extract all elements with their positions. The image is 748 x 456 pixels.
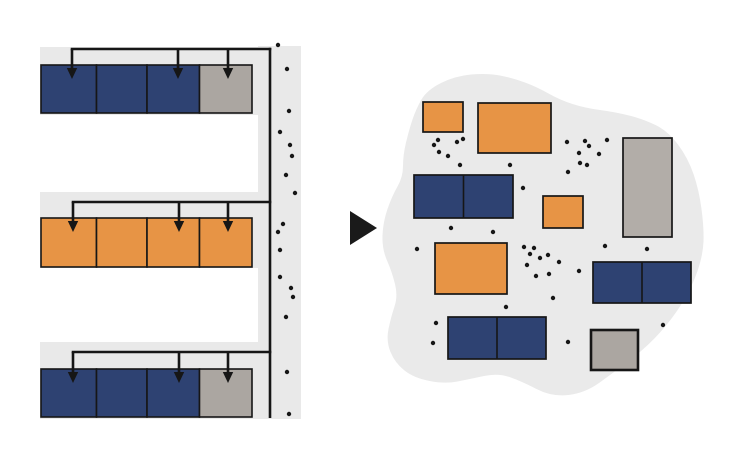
memory-row-2	[40, 192, 271, 268]
heap-object-rect	[623, 138, 672, 237]
spine-scatter-dot	[289, 286, 293, 290]
spine-scatter-dot	[288, 143, 292, 147]
heap-scatter-dot	[528, 252, 532, 256]
heap-scatter-dot	[566, 170, 570, 174]
heap-scatter-dot	[566, 340, 570, 344]
spine-scatter-dot	[276, 230, 280, 234]
heap-scatter-dot	[508, 163, 512, 167]
heap-scatter-dot	[565, 140, 569, 144]
array-cell-orange	[41, 218, 97, 267]
heap-object-rect	[591, 330, 638, 370]
heap-object-blue	[593, 262, 691, 303]
heap-scatter-dot	[577, 269, 581, 273]
heap-object-orange	[423, 102, 463, 132]
memory-row-3	[40, 342, 271, 419]
heap-scatter-dot	[577, 151, 581, 155]
heap-scatter-dot	[522, 245, 526, 249]
heap-object-blue	[448, 317, 546, 359]
heap-scatter-dot	[547, 272, 551, 276]
heap-scatter-dot	[597, 152, 601, 156]
spine-scatter-dot	[284, 173, 288, 177]
heap-scatter-dot	[603, 244, 607, 248]
heap-scatter-dot	[546, 253, 550, 257]
array-cell-blue	[97, 369, 148, 417]
heap-scatter-dot	[583, 139, 587, 143]
heap-object-gray	[591, 330, 638, 370]
diagram-canvas	[0, 0, 748, 456]
heap-object-rect	[423, 102, 463, 132]
heap-object-orange	[435, 243, 507, 294]
array-cell-blue	[41, 65, 97, 113]
heap-scatter-dot	[432, 143, 436, 147]
array-cell-orange	[147, 218, 200, 267]
spine-scatter-dot	[293, 191, 297, 195]
spine-scatter-dot	[278, 130, 282, 134]
array-cell-blue	[41, 369, 97, 417]
heap-scatter-dot	[645, 247, 649, 251]
heap-scatter-dot	[521, 186, 525, 190]
memory-row-1	[40, 47, 271, 115]
heap-scatter-dot	[415, 247, 419, 251]
heap-object-blue	[414, 175, 513, 218]
heap-scatter-dot	[578, 161, 582, 165]
heap-object-orange	[543, 196, 583, 228]
spine-scatter-dot	[287, 109, 291, 113]
right-panel-fragmented-memory	[382, 74, 703, 395]
heap-scatter-dot	[661, 323, 665, 327]
heap-scatter-dot	[525, 263, 529, 267]
heap-scatter-dot	[436, 138, 440, 142]
heap-scatter-dot	[437, 150, 441, 154]
spine-scatter-dot	[278, 275, 282, 279]
spine-scatter-dot	[290, 154, 294, 158]
heap-scatter-dot	[538, 256, 542, 260]
heap-scatter-dot	[504, 305, 508, 309]
spine-scatter-dot	[287, 412, 291, 416]
heap-scatter-dot	[449, 226, 453, 230]
heap-scatter-dot	[491, 230, 495, 234]
spine-scatter-dot	[276, 43, 280, 47]
array-cell-blue	[147, 65, 200, 113]
heap-scatter-dot	[605, 138, 609, 142]
spine-scatter-dot	[285, 370, 289, 374]
spine-scatter-dot	[291, 295, 295, 299]
heap-object-rect	[478, 103, 551, 153]
heap-scatter-dot	[434, 321, 438, 325]
heap-object-rect	[435, 243, 507, 294]
heap-object-gray_light	[623, 138, 672, 237]
heap-scatter-dot	[551, 296, 555, 300]
memory-fragmentation-diagram	[0, 0, 748, 456]
spine-scatter-dot	[278, 248, 282, 252]
array-cell-blue	[147, 369, 200, 417]
spine-scatter-dot	[285, 67, 289, 71]
spine-scatter-dot	[281, 222, 285, 226]
heap-scatter-dot	[587, 144, 591, 148]
left-panel-structured-memory	[40, 43, 301, 419]
array-cell-orange	[97, 218, 148, 267]
heap-scatter-dot	[534, 274, 538, 278]
heap-object-rect	[543, 196, 583, 228]
spine-scatter-dot	[284, 315, 288, 319]
transform-arrow-icon	[350, 211, 377, 245]
heap-scatter-dot	[458, 163, 462, 167]
heap-object-orange	[478, 103, 551, 153]
heap-scatter-dot	[557, 260, 561, 264]
heap-scatter-dot	[585, 163, 589, 167]
heap-scatter-dot	[431, 341, 435, 345]
array-cell-blue	[97, 65, 148, 113]
heap-scatter-dot	[446, 154, 450, 158]
heap-scatter-dot	[455, 140, 459, 144]
heap-scatter-dot	[461, 137, 465, 141]
heap-scatter-dot	[532, 246, 536, 250]
